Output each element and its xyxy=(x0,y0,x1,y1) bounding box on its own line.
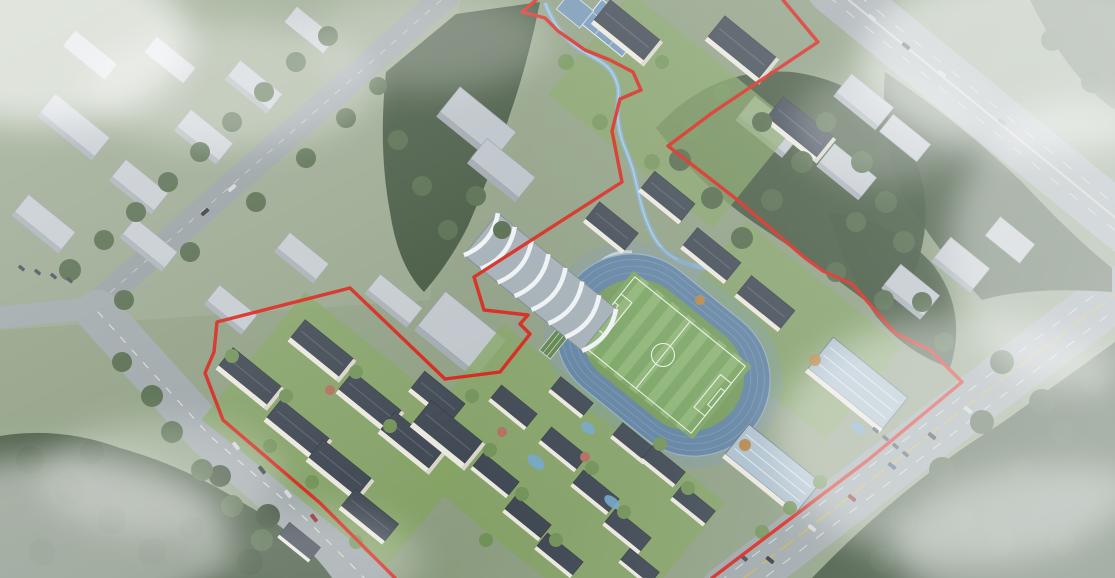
aerial-rendering xyxy=(0,0,1115,578)
haze-grade-right xyxy=(0,0,1115,578)
